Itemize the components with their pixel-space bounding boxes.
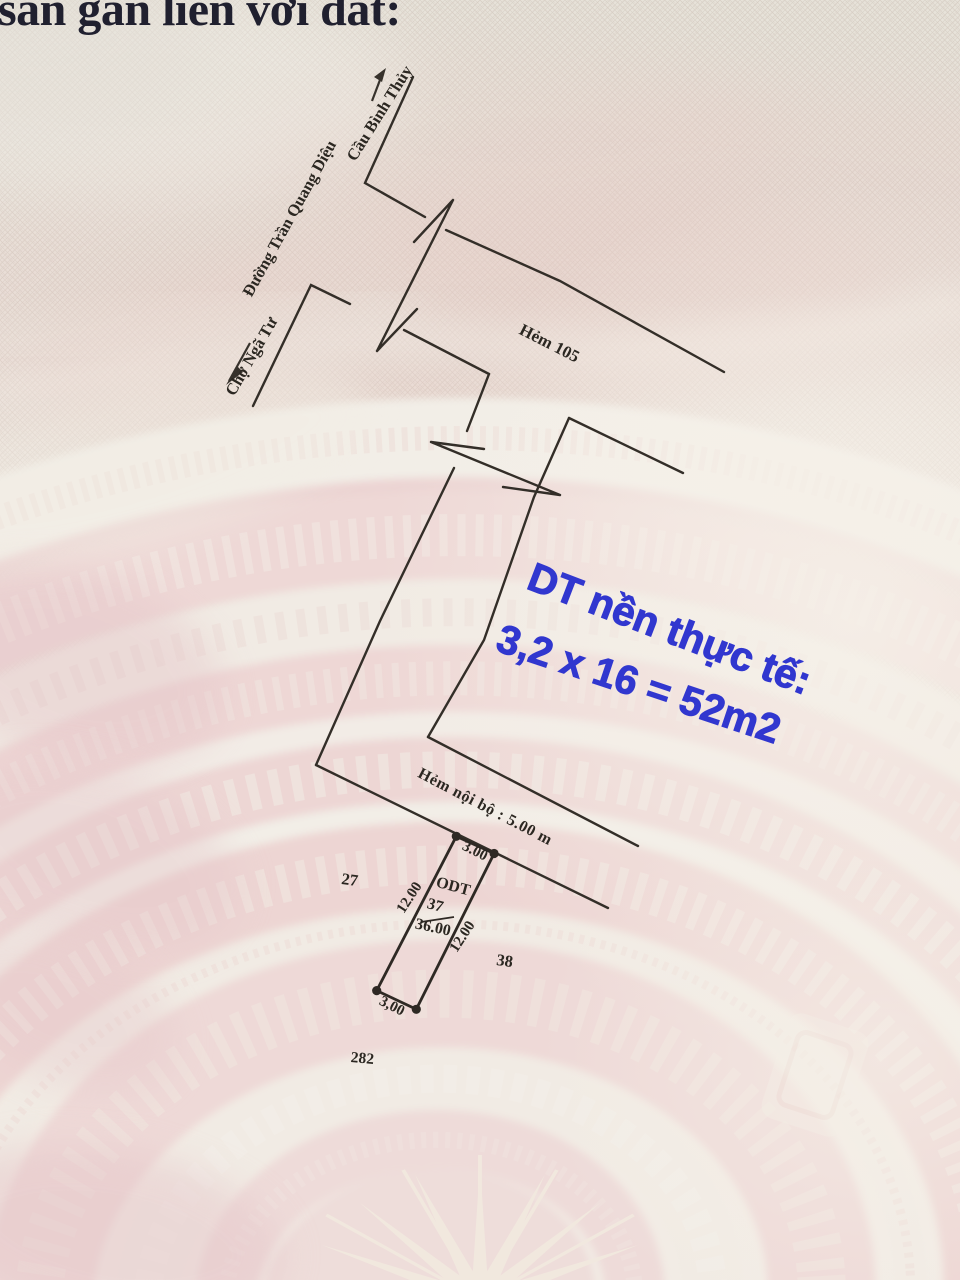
svg-text:sản gắn liền với đất:: sản gắn liền với đất: bbox=[0, 0, 401, 36]
svg-text:282: 282 bbox=[350, 1049, 375, 1068]
svg-text:38: 38 bbox=[495, 950, 514, 971]
svg-text:27: 27 bbox=[340, 869, 359, 890]
